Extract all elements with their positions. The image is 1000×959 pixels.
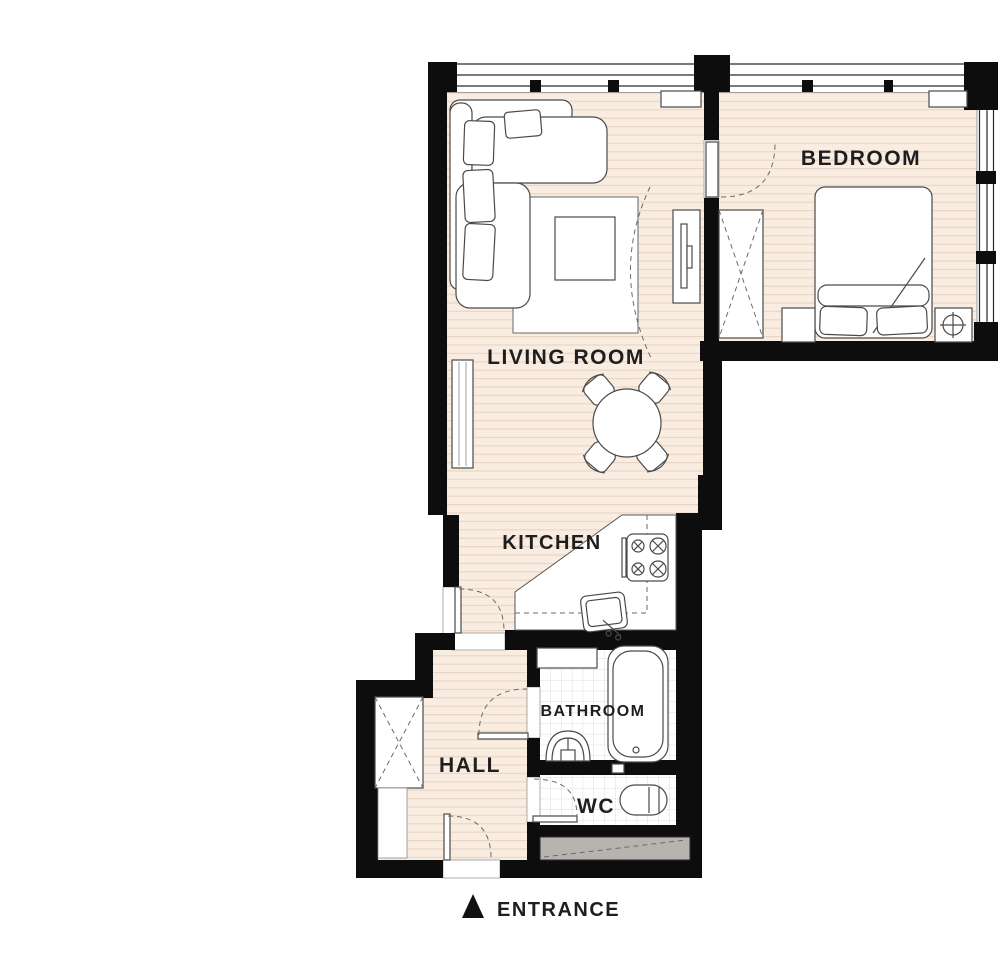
window-mullion [802, 80, 813, 92]
oven-handle [622, 538, 626, 577]
basin-tap [561, 750, 575, 761]
tv-bracket [687, 246, 692, 268]
wall-divider-lower [704, 198, 719, 341]
stove [622, 534, 668, 581]
bathroom-door-opening [527, 687, 540, 738]
window-mullion [884, 80, 893, 92]
entrance-marker: ENTRANCE [462, 894, 620, 921]
bedroom-door-leaf [706, 142, 718, 197]
triangle-up-icon [462, 894, 484, 918]
bed-pillow [876, 306, 927, 336]
bathroom-label: BATHROOM [540, 703, 645, 720]
wall-right-lower [676, 530, 702, 878]
shaft-area [540, 837, 690, 860]
wc-label: WC [577, 795, 615, 818]
tv-screen [681, 224, 687, 288]
living-room-label: LIVING ROOM [487, 346, 645, 369]
wall-jog-b [676, 513, 702, 538]
coffee-table [555, 217, 615, 280]
hall-closet-niche [378, 788, 407, 858]
wall-bathroom-top [505, 630, 702, 650]
dining-table [593, 389, 661, 457]
shaft [540, 837, 690, 860]
radiator-living-top [661, 91, 701, 107]
wall-hall-upper-left [415, 633, 433, 682]
entrance-door-opening [443, 860, 500, 878]
wall-wc-bottom [527, 825, 690, 837]
hall-label: HALL [439, 754, 501, 777]
nightstand-left [782, 308, 815, 342]
hall-wardrobe [375, 697, 423, 788]
sofa-pillow [463, 223, 496, 280]
bedroom-window-top [719, 64, 968, 93]
toilet [620, 785, 667, 815]
kitchen-label: KITCHEN [502, 532, 601, 554]
window-mullion [976, 251, 996, 264]
wc-door-opening [527, 777, 540, 822]
window-mullion [976, 171, 996, 184]
wall-top-right-corner [964, 62, 998, 110]
floor-plan: LIVING ROOM BEDROOM [0, 0, 1000, 959]
bed-pillow [820, 306, 868, 336]
window-mullion [530, 80, 541, 92]
bed [815, 187, 932, 338]
bathroom-door-leaf [478, 733, 528, 739]
kitchen-hall-opening [453, 633, 505, 650]
wall-top-left-corner [428, 62, 457, 92]
wall-kitchen-left [443, 515, 459, 587]
wall-center-top-pier [694, 55, 730, 92]
wall-bottom-left [356, 860, 443, 878]
sofa-pillow [463, 169, 496, 222]
wc-niche [612, 764, 624, 773]
radiator-bedroom [929, 91, 967, 107]
wc-door-leaf [533, 816, 577, 822]
bedroom-window-right [977, 107, 994, 322]
entrance-door-leaf [444, 814, 450, 860]
kitchen-door-leaf [455, 587, 461, 633]
entrance-label: ENTRANCE [497, 899, 620, 921]
bed-blanket-roll [818, 285, 929, 306]
radiator-living-left [452, 360, 473, 468]
window-mullion [608, 80, 619, 92]
bathroom-shelf [537, 648, 597, 668]
bedroom-wardrobe [719, 210, 763, 338]
bedroom-label: BEDROOM [801, 147, 921, 170]
floor-plan-page: LIVING ROOM BEDROOM [0, 0, 1000, 959]
wall-right-bottom-corner [974, 322, 998, 361]
wall-left [428, 92, 447, 515]
living-room-window [447, 64, 704, 93]
sofa-pillow [504, 109, 542, 138]
nightstand-right [935, 308, 972, 342]
wall-living-right [703, 361, 722, 480]
wall-bedroom-bottom [700, 341, 998, 361]
sofa-pillow [463, 120, 495, 165]
wall-divider-upper [704, 92, 719, 140]
